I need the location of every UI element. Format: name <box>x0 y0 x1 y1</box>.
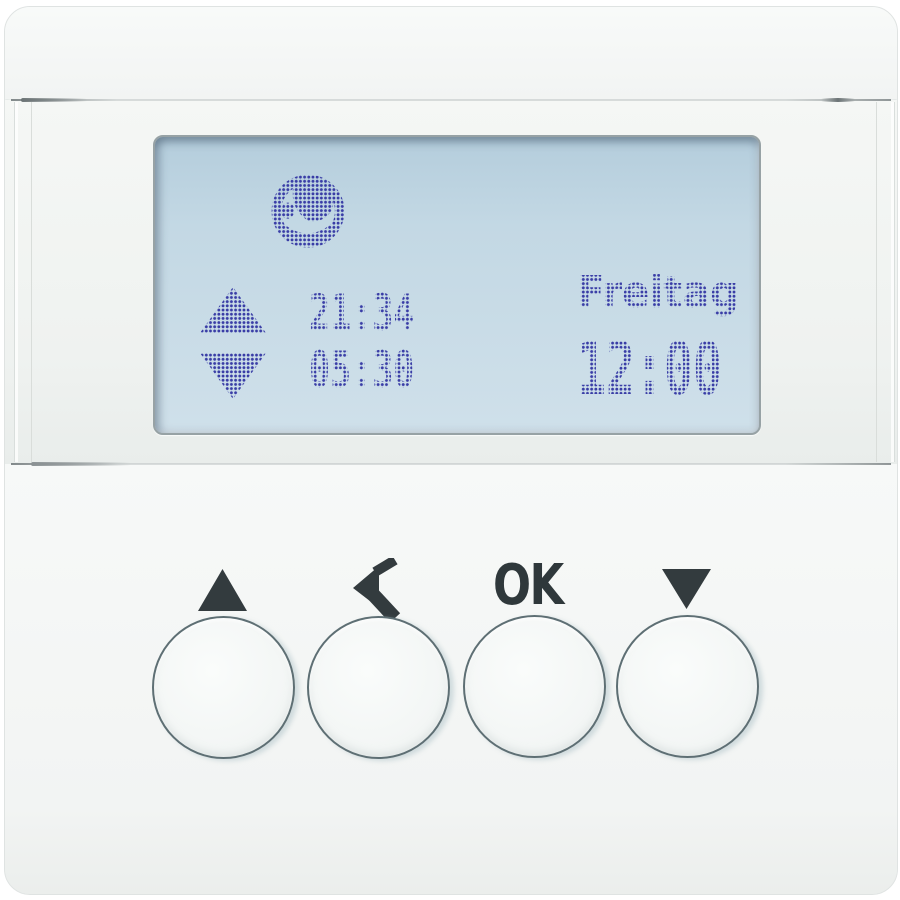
blind-down-icon <box>200 353 266 399</box>
seam-shadow-lower <box>31 462 131 466</box>
glass-groove-left <box>31 102 32 462</box>
top-cover-strip <box>5 7 897 99</box>
glass-groove-right <box>876 102 877 462</box>
raise-time: 21:34 <box>309 292 429 334</box>
lower-time: 05:30 <box>309 349 429 391</box>
glass-edge-right <box>891 102 895 462</box>
weekday-label: Freitag <box>577 269 747 321</box>
ok-label: OK <box>493 558 573 614</box>
button-down[interactable] <box>616 615 759 758</box>
top-seam <box>11 99 891 101</box>
button-up[interactable] <box>152 616 295 759</box>
button-panel <box>5 464 897 894</box>
screenshot-stage: 21:34 05:30 Freitag 12:00 OK <box>0 0 900 900</box>
device-plate: 21:34 05:30 Freitag 12:00 OK <box>4 6 898 895</box>
blind-up-icon <box>200 287 266 333</box>
button-ok[interactable] <box>463 615 606 758</box>
lcd-display: 21:34 05:30 Freitag 12:00 <box>153 135 761 435</box>
globe-icon <box>269 175 347 249</box>
button-back[interactable] <box>307 616 450 759</box>
glass-edge-left <box>14 102 18 462</box>
arrow-back-icon <box>351 558 401 622</box>
seam-shadow-right <box>821 98 855 102</box>
bottom-seam <box>11 463 891 465</box>
clock-time: 12:00 <box>577 341 747 401</box>
